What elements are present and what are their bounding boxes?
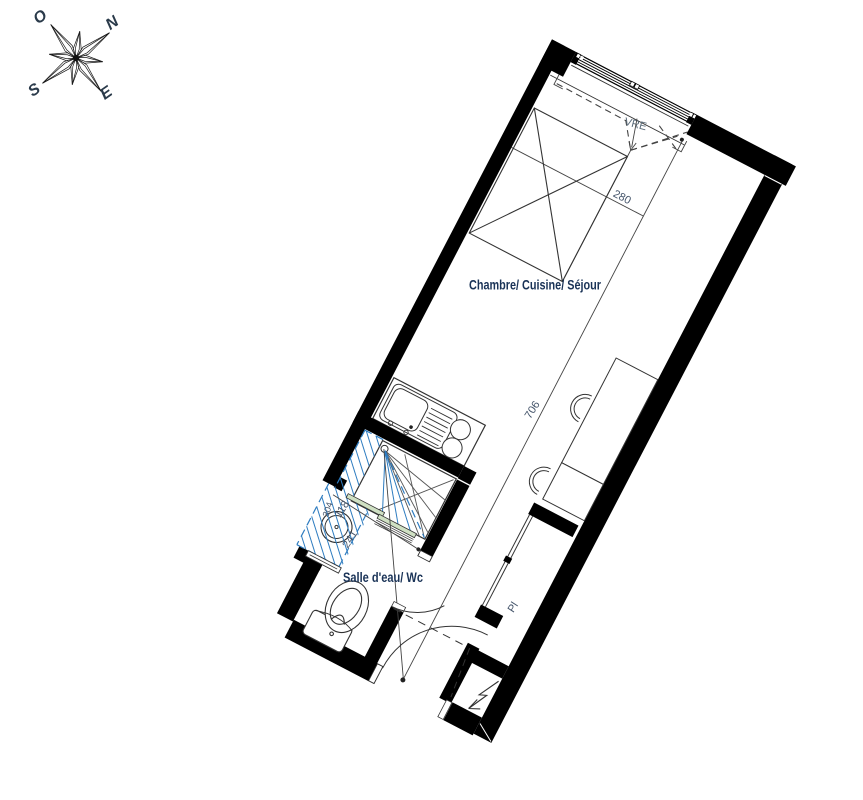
svg-text:Salle d'eau/ Wc: Salle d'eau/ Wc	[343, 569, 423, 585]
svg-text:Chambre/ Cuisine/ Séjour: Chambre/ Cuisine/ Séjour	[469, 277, 601, 293]
